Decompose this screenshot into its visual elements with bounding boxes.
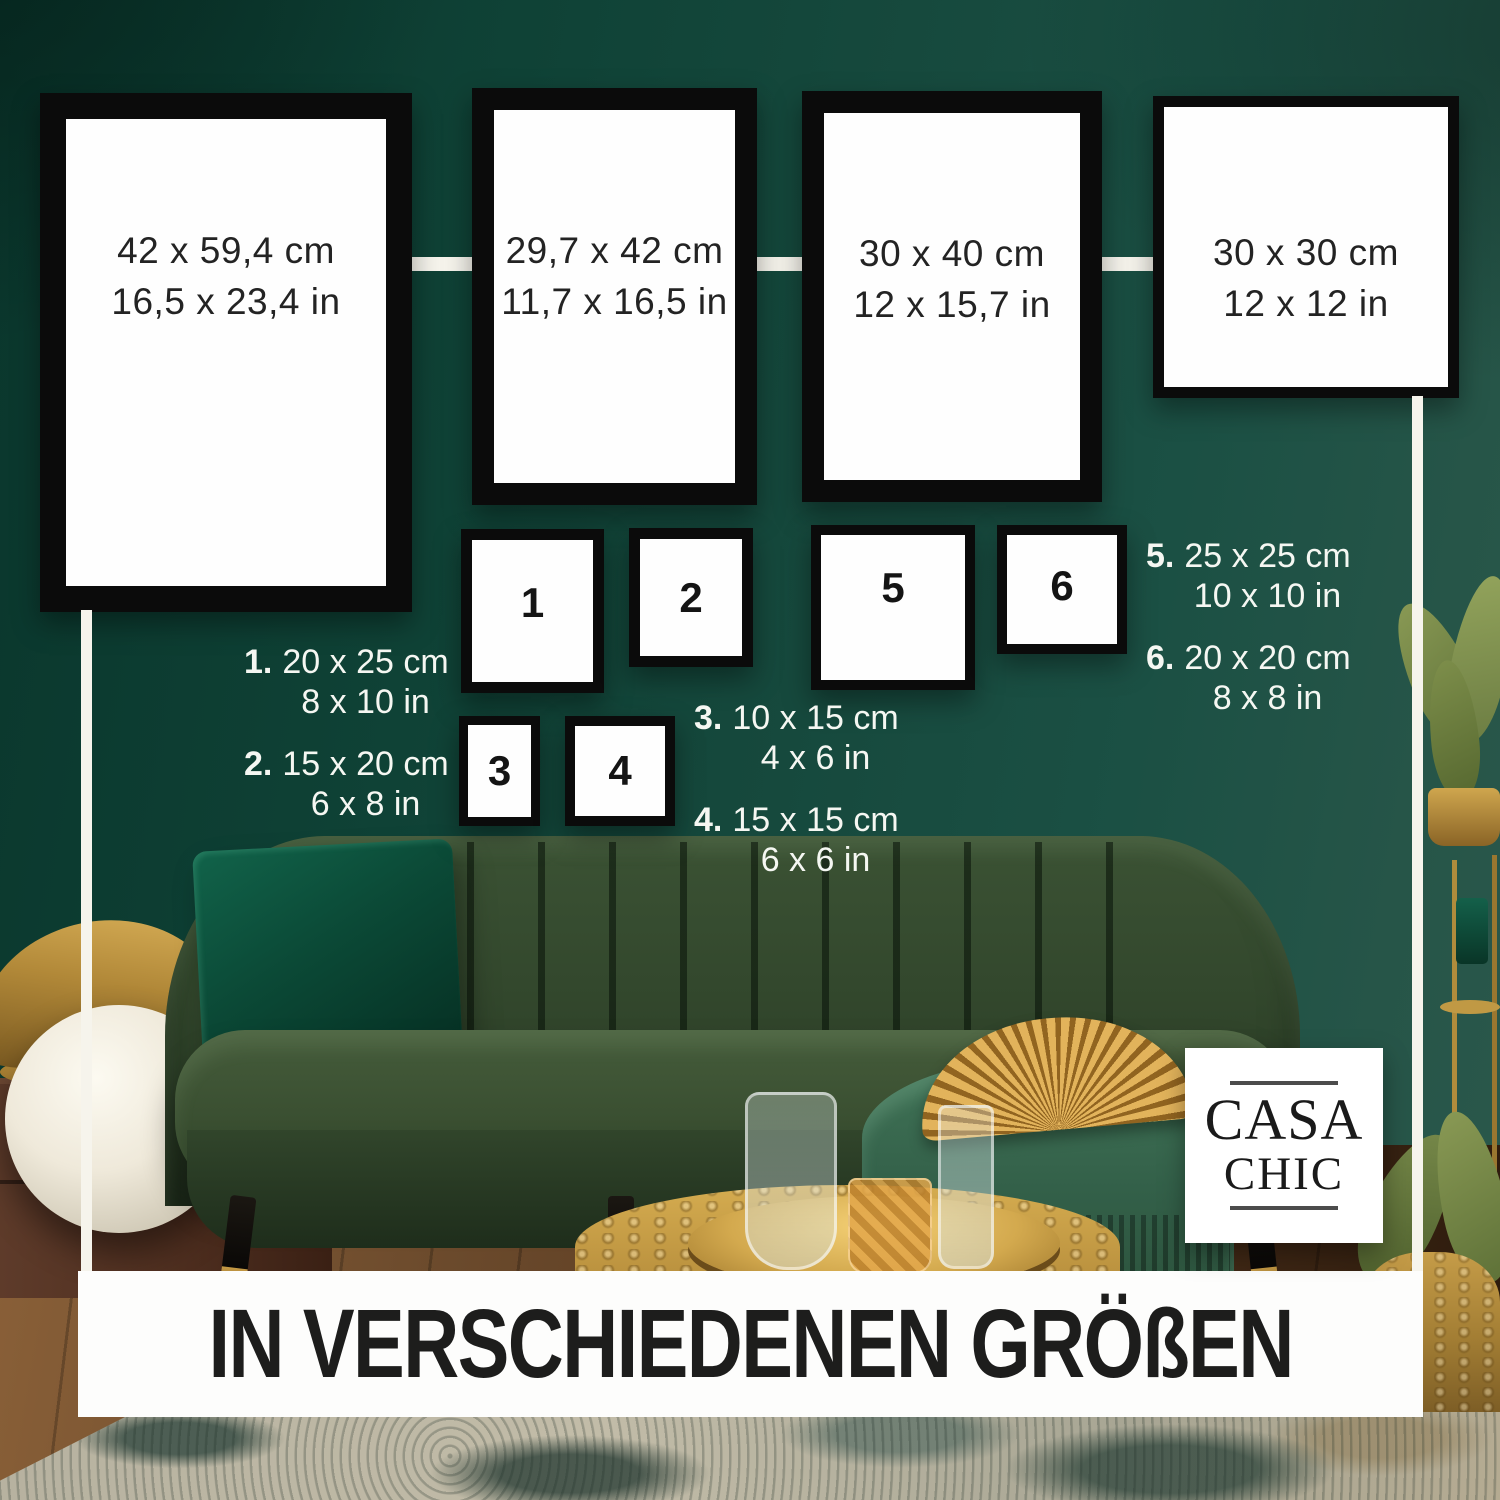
logo-word-casa: CASA: [1205, 1091, 1364, 1149]
legend-item-1: 1. 20 x 25 cm 8 x 10 in: [244, 642, 449, 722]
frame-size-label: 30 x 40 cm 12 x 15,7 in: [824, 228, 1080, 330]
legend-number: 5.: [1146, 536, 1174, 616]
size-cm: 42 x 59,4 cm: [117, 230, 335, 271]
frame-number-2: 2: [629, 528, 753, 667]
frame-number-label: 4: [608, 747, 631, 795]
right-vertical-connector-line: [1412, 396, 1423, 1272]
legend-dimensions: 10 x 15 cm 4 x 6 in: [732, 698, 898, 778]
legend-dimensions: 15 x 20 cm 6 x 8 in: [282, 744, 448, 824]
frame-number-3: 3: [459, 716, 540, 826]
amber-glass: [848, 1178, 932, 1274]
size-cm: 30 x 40 cm: [859, 233, 1045, 274]
size-in: 12 x 12 in: [1223, 283, 1388, 324]
frame-number-1: 1: [461, 529, 604, 693]
frame-number-label: 3: [488, 747, 511, 795]
legend-dimensions: 20 x 25 cm 8 x 10 in: [282, 642, 448, 722]
legend-number: 4.: [694, 800, 722, 880]
headline-banner: IN VERSCHIEDENEN GRÖßEN: [78, 1271, 1423, 1417]
legend-dimensions: 25 x 25 cm 10 x 10 in: [1184, 536, 1350, 616]
frame-29-7x42: 29,7 x 42 cm 11,7 x 16,5 in: [472, 88, 757, 505]
size-legend-left: 1. 20 x 25 cm 8 x 10 in 2. 15 x 20 cm 6 …: [244, 642, 449, 846]
drinking-glass: [745, 1092, 837, 1270]
size-cm: 15 x 15 cm: [732, 800, 898, 840]
logo-rule-top: [1230, 1081, 1338, 1085]
size-cm: 20 x 20 cm: [1184, 638, 1350, 678]
tall-glass: [938, 1105, 994, 1269]
bar-cart: [1492, 855, 1497, 1190]
legend-item-5: 5. 25 x 25 cm 10 x 10 in: [1146, 536, 1351, 616]
legend-number: 6.: [1146, 638, 1174, 718]
size-in: 6 x 6 in: [732, 840, 898, 880]
size-cm: 15 x 20 cm: [282, 744, 448, 784]
left-vertical-connector-line: [81, 610, 92, 1272]
size-cm: 30 x 30 cm: [1213, 232, 1399, 273]
size-in: 8 x 10 in: [282, 682, 448, 722]
size-in: 4 x 6 in: [732, 738, 898, 778]
logo-rule-bottom: [1230, 1206, 1338, 1210]
logo-word-chic: CHIC: [1224, 1151, 1344, 1198]
size-cm: 29,7 x 42 cm: [506, 230, 724, 271]
frame-number-label: 2: [679, 574, 702, 622]
size-in: 10 x 10 in: [1184, 576, 1350, 616]
frame-size-label: 29,7 x 42 cm 11,7 x 16,5 in: [494, 225, 735, 327]
size-cm: 20 x 25 cm: [282, 642, 448, 682]
size-in: 6 x 8 in: [282, 784, 448, 824]
legend-item-4: 4. 15 x 15 cm 6 x 6 in: [694, 800, 899, 880]
size-legend-middle: 3. 10 x 15 cm 4 x 6 in 4. 15 x 15 cm 6 x…: [694, 698, 899, 902]
size-in: 12 x 15,7 in: [853, 284, 1050, 325]
legend-number: 1.: [244, 642, 272, 722]
legend-dimensions: 15 x 15 cm 6 x 6 in: [732, 800, 898, 880]
frame-number-label: 6: [1050, 562, 1073, 610]
frame-42x59-4: 42 x 59,4 cm 16,5 x 23,4 in: [40, 93, 412, 612]
frame-size-label: 42 x 59,4 cm 16,5 x 23,4 in: [66, 225, 386, 327]
frame-30x40: 30 x 40 cm 12 x 15,7 in: [802, 91, 1102, 502]
size-cm: 25 x 25 cm: [1184, 536, 1350, 576]
patterned-rug: [0, 1412, 1500, 1500]
frame-number-label: 1: [521, 579, 544, 627]
size-in: 11,7 x 16,5 in: [501, 281, 727, 322]
frame-number-label: 5: [881, 564, 904, 612]
size-cm: 10 x 15 cm: [732, 698, 898, 738]
size-in: 8 x 8 in: [1184, 678, 1350, 718]
gold-plant-pot: [1428, 788, 1500, 846]
size-legend-right: 5. 25 x 25 cm 10 x 10 in 6. 20 x 20 cm 8…: [1146, 536, 1351, 740]
frame-number-5: 5: [811, 525, 975, 690]
legend-item-2: 2. 15 x 20 cm 6 x 8 in: [244, 744, 449, 824]
headline-text: IN VERSCHIEDENEN GRÖßEN: [208, 1288, 1292, 1400]
green-glass: [1456, 898, 1488, 964]
bar-cart-shelf: [1440, 1000, 1500, 1014]
size-in: 16,5 x 23,4 in: [111, 281, 340, 322]
frame-size-label: 30 x 30 cm 12 x 12 in: [1164, 227, 1448, 329]
legend-number: 3.: [694, 698, 722, 778]
legend-dimensions: 20 x 20 cm 8 x 8 in: [1184, 638, 1350, 718]
frame-number-4: 4: [565, 716, 675, 826]
frame-30x30: 30 x 30 cm 12 x 12 in: [1153, 96, 1459, 398]
legend-item-6: 6. 20 x 20 cm 8 x 8 in: [1146, 638, 1351, 718]
casa-chic-logo: CASA CHIC: [1185, 1048, 1383, 1243]
product-size-infographic: 42 x 59,4 cm 16,5 x 23,4 in 29,7 x 42 cm…: [0, 0, 1500, 1500]
frame-number-6: 6: [997, 525, 1127, 654]
legend-item-3: 3. 10 x 15 cm 4 x 6 in: [694, 698, 899, 778]
legend-number: 2.: [244, 744, 272, 824]
